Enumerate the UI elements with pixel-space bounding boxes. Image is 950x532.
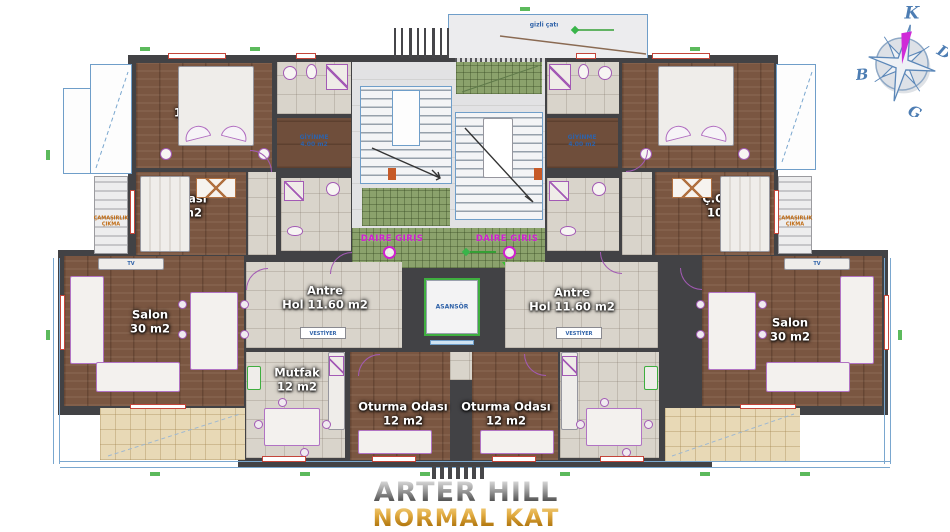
balcony-rail-right — [884, 258, 891, 464]
kitchen-table-left — [264, 408, 320, 446]
chair — [240, 330, 249, 339]
living-left-area: 12 m2 — [358, 414, 447, 428]
shower-icon — [549, 181, 569, 201]
hall-left-name: Antre — [282, 284, 368, 298]
chair — [178, 300, 187, 309]
window — [296, 53, 316, 59]
wardrobe-left — [196, 178, 236, 198]
chair — [758, 300, 767, 309]
title-block: ARTER HILL NORMAL KAT — [300, 477, 632, 532]
washer-icon — [283, 66, 297, 80]
pergola-bar — [409, 28, 412, 58]
platform-note-left: ÇAMAŞIRLIK ÇIKMA — [94, 216, 129, 228]
balcony-top-right — [776, 64, 816, 170]
window — [884, 295, 889, 350]
fridge-left — [247, 366, 261, 390]
compass-letter-south: G — [905, 101, 924, 117]
elevator-label: ASANSÖR — [436, 303, 469, 310]
window — [262, 456, 306, 462]
dimension-mark — [560, 472, 570, 476]
green-terrace-top — [456, 62, 542, 94]
sofa-horizontal-right — [766, 362, 850, 392]
window — [168, 53, 226, 59]
sofa-living-left — [358, 430, 432, 454]
balcony-ext-left — [63, 88, 91, 174]
living-left-label: Oturma Odası 12 m2 — [358, 400, 447, 427]
hall-right-name: Antre — [529, 286, 615, 300]
dressing-right-area: 4.00 m2 — [568, 141, 595, 148]
toilet-icon — [560, 226, 576, 236]
tv-label-right: TV — [813, 261, 820, 267]
kitchen-left-label: Mutfak 12 m2 — [274, 366, 320, 393]
tv-label-left: TV — [127, 261, 134, 267]
washer-icon — [598, 66, 612, 80]
sofa-living-right — [480, 430, 554, 454]
staircase-left-railing — [392, 90, 420, 146]
dressing-left-area: 4.00 m2 — [300, 141, 327, 148]
stove-right — [562, 356, 577, 376]
dimension-mark — [140, 47, 150, 51]
sofa-horizontal-left — [96, 362, 180, 392]
toilet-icon — [287, 226, 303, 236]
washer-icon — [592, 182, 606, 196]
dimension-mark — [420, 472, 430, 476]
chair — [696, 330, 705, 339]
salon-right-name: Salon — [770, 316, 810, 330]
balcony-rail-left — [53, 258, 60, 464]
salon-left-area: 30 m2 — [130, 322, 170, 336]
stair-corner-brace — [534, 168, 542, 180]
entrance-right-label: DAIRE GIRIS — [476, 234, 538, 244]
compass-group: K D B G — [856, 2, 948, 117]
nightstand-right — [738, 148, 750, 160]
balcony-bottom-right — [665, 408, 800, 462]
toilet-icon — [306, 64, 317, 79]
dimension-mark — [520, 7, 530, 11]
living-link-corridor — [450, 352, 472, 380]
window — [60, 295, 65, 350]
dimension-mark — [46, 330, 50, 340]
nightstand-left — [160, 148, 172, 160]
closet-left-label: VESTİYER — [309, 331, 336, 337]
fridge-right — [644, 366, 658, 390]
floor-plan-canvas: gizli çatı DAIRE GIRIS DAIRE GIRIS ASANS… — [0, 0, 950, 532]
hall-right-detail: Hol 11.60 m2 — [529, 300, 615, 314]
window — [130, 404, 186, 409]
dressing-left-name: GİYİNME — [300, 134, 329, 141]
bed-child-right — [720, 176, 770, 252]
window — [774, 190, 779, 234]
compass-letter-west: B — [856, 65, 869, 84]
salon-right-label: Salon 30 m2 — [770, 316, 810, 343]
window — [740, 404, 796, 409]
chair — [758, 330, 767, 339]
stair-corner-brace — [388, 168, 396, 180]
dimension-mark — [690, 47, 700, 51]
dimension-mark — [46, 150, 50, 160]
sofa-vertical-left — [70, 276, 104, 364]
chair — [322, 420, 331, 429]
compass-letter-north: K — [903, 3, 920, 23]
chair — [600, 398, 609, 407]
dressing-left-label: GİYİNME 4.00 m2 — [300, 134, 329, 148]
green-landing-left — [362, 188, 450, 226]
living-right-area: 12 m2 — [461, 414, 550, 428]
balcony-bottom-left — [100, 408, 245, 460]
kitchen-left-area: 12 m2 — [274, 380, 320, 394]
shower-icon — [549, 64, 571, 90]
pergola-bar — [424, 28, 426, 58]
window — [576, 53, 596, 59]
kitchen-table-right — [586, 408, 642, 446]
platform-note-left-line2: ÇIKMA — [102, 221, 120, 227]
living-right-label: Oturma Odası 12 m2 — [461, 400, 550, 427]
kitchen-left-name: Mutfak — [274, 366, 320, 380]
floor-title: NORMAL KAT — [300, 504, 632, 532]
dimension-mark — [800, 472, 810, 476]
hall-left-label: Antre Hol 11.60 m2 — [282, 284, 368, 311]
window — [600, 456, 644, 462]
staircase-right-railing — [483, 118, 513, 178]
chair — [644, 420, 653, 429]
elevator-sill — [430, 340, 474, 345]
pergola-bar — [394, 28, 396, 58]
window — [492, 456, 536, 462]
corridor-right — [622, 172, 652, 255]
pergola-bar — [447, 28, 449, 58]
hall-right-label: Antre Hol 11.60 m2 — [529, 286, 615, 313]
chair — [254, 420, 263, 429]
washer-icon — [326, 182, 340, 196]
sofa-vertical-right — [840, 276, 874, 364]
shower-icon — [326, 64, 348, 90]
dimension-mark — [250, 47, 260, 51]
wardrobe-right — [672, 178, 712, 198]
window — [652, 53, 710, 59]
entrance-left-marker — [383, 246, 396, 259]
corridor-leader-line — [470, 251, 496, 253]
window — [372, 456, 416, 462]
chair — [278, 398, 287, 407]
hall-left-detail: Hol 11.60 m2 — [282, 298, 368, 312]
compass-rose: K D B G — [856, 2, 948, 117]
living-right-name: Oturma Odası — [461, 400, 550, 414]
corridor-left — [248, 172, 276, 255]
pergola-bar — [417, 28, 419, 58]
dressing-right-name: GİYİNME — [568, 134, 597, 141]
living-left-name: Oturma Odası — [358, 400, 447, 414]
dining-table-salon-right — [708, 292, 756, 370]
platform-note-right: ÇAMAŞIRLIK ÇIKMA — [778, 216, 813, 228]
toilet-icon — [578, 64, 589, 79]
salon-left-label: Salon 30 m2 — [130, 308, 170, 335]
dimension-mark — [700, 472, 710, 476]
pergola-bar — [401, 28, 403, 58]
bed-child-left — [140, 176, 190, 252]
window — [130, 190, 135, 234]
entrance-left-label: DAIRE GIRIS — [361, 234, 423, 244]
entrance-right-marker — [503, 246, 516, 259]
balcony-top-left — [90, 64, 132, 174]
platform-note-right-line2: ÇIKMA — [786, 221, 804, 227]
compass-letter-east: D — [933, 41, 948, 64]
dimension-mark — [150, 472, 160, 476]
pergola-bar — [440, 28, 442, 58]
shower-icon — [284, 181, 304, 201]
chair — [240, 300, 249, 309]
dimension-mark — [898, 330, 902, 340]
chair — [576, 420, 585, 429]
stove-left — [329, 356, 344, 376]
chair — [696, 300, 705, 309]
pergola-bar — [432, 28, 435, 58]
roof-note-label: gizli çatı — [530, 21, 559, 28]
salon-left-name: Salon — [130, 308, 170, 322]
dining-table-salon-left — [190, 292, 238, 370]
chair — [178, 330, 187, 339]
closet-right-label: VESTİYER — [565, 331, 592, 337]
dimension-mark — [300, 472, 310, 476]
salon-right-area: 30 m2 — [770, 330, 810, 344]
dressing-right-label: GİYİNME 4.00 m2 — [568, 134, 597, 148]
